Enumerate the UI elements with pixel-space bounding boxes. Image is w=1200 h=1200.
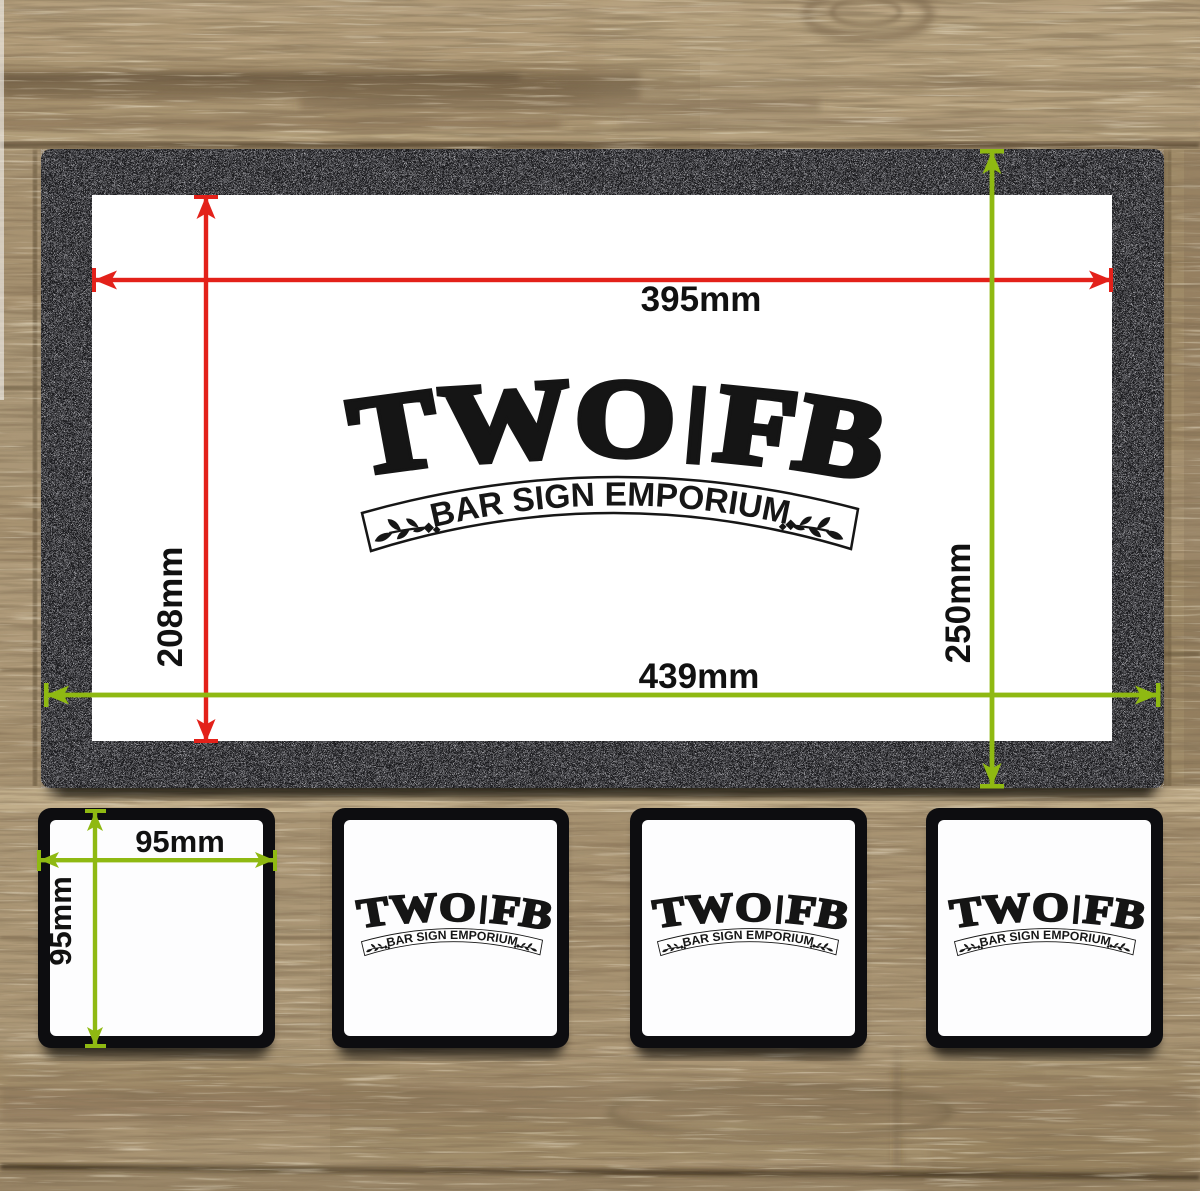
- svg-text:250mm: 250mm: [939, 543, 978, 664]
- svg-text:95mm: 95mm: [43, 876, 78, 966]
- svg-text:95mm: 95mm: [135, 824, 225, 859]
- svg-text:208mm: 208mm: [151, 547, 190, 668]
- svg-text:395mm: 395mm: [641, 280, 762, 319]
- svg-text:439mm: 439mm: [639, 657, 760, 696]
